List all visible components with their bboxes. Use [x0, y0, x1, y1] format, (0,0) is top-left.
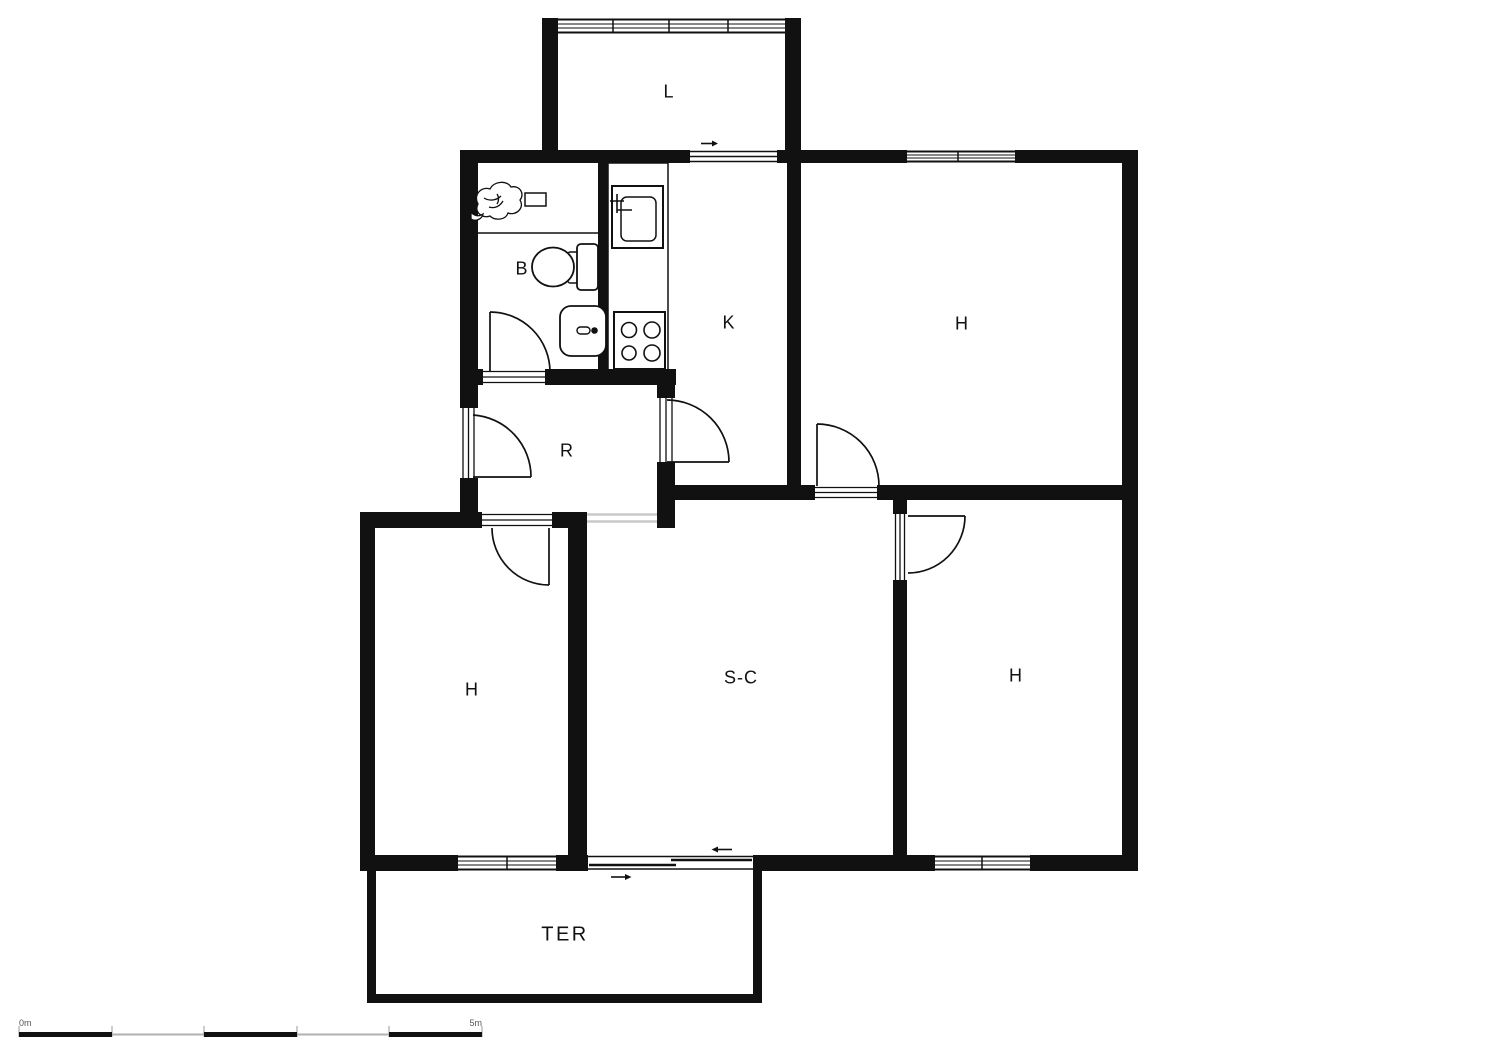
- room-label-bedroom-top-right: H: [955, 314, 969, 335]
- room-label-kitchen: K: [722, 313, 735, 334]
- room-label-bedroom-bottom-left: H: [465, 680, 479, 701]
- door-entrance: [460, 408, 531, 478]
- door-kitchen: [657, 398, 729, 462]
- washbasin-icon: [560, 306, 606, 356]
- door-bathroom: [483, 312, 550, 385]
- bathroom-fixtures: [471, 182, 606, 356]
- open-passage-hall-living: [587, 513, 657, 523]
- toilet-icon: [532, 244, 598, 290]
- window-bedroom-top-right: [907, 150, 1015, 163]
- doors: [460, 312, 965, 585]
- sliding-door-terrace: [588, 847, 753, 881]
- floor-plan: L B K H R H S-C H TER 0m 5m: [0, 0, 1500, 1061]
- room-label-bedroom-bottom-right: H: [1009, 666, 1023, 687]
- room-label-hall: R: [560, 441, 574, 462]
- room-label-bathroom: B: [515, 259, 528, 280]
- stove-icon: [614, 312, 665, 369]
- kitchen-fixtures: [608, 163, 668, 380]
- shelf-icon: [525, 193, 546, 206]
- sliding-door-loggia: [690, 141, 777, 164]
- window-loggia: [558, 18, 785, 34]
- floorplan-graphics: [0, 0, 1500, 1061]
- window-bedroom-bottom-left: [458, 855, 556, 871]
- window-bedroom-bottom-right: [935, 855, 1030, 871]
- sliding-doors: [588, 141, 777, 881]
- room-label-loggia: L: [663, 82, 674, 103]
- room-label-living-dining: S-C: [724, 668, 758, 689]
- door-bedroom-bottom-left: [482, 512, 552, 585]
- plant-icon: [471, 182, 522, 220]
- scale-label-end: 5m: [469, 1018, 482, 1028]
- door-bedroom-top-right: [815, 424, 879, 500]
- door-bedroom-bottom-right: [893, 514, 965, 580]
- room-label-terrace: TER: [541, 924, 589, 947]
- kitchen-sink: [610, 186, 663, 248]
- scale-bar-graphic: [19, 1026, 482, 1037]
- scale-label-start: 0m: [19, 1018, 32, 1028]
